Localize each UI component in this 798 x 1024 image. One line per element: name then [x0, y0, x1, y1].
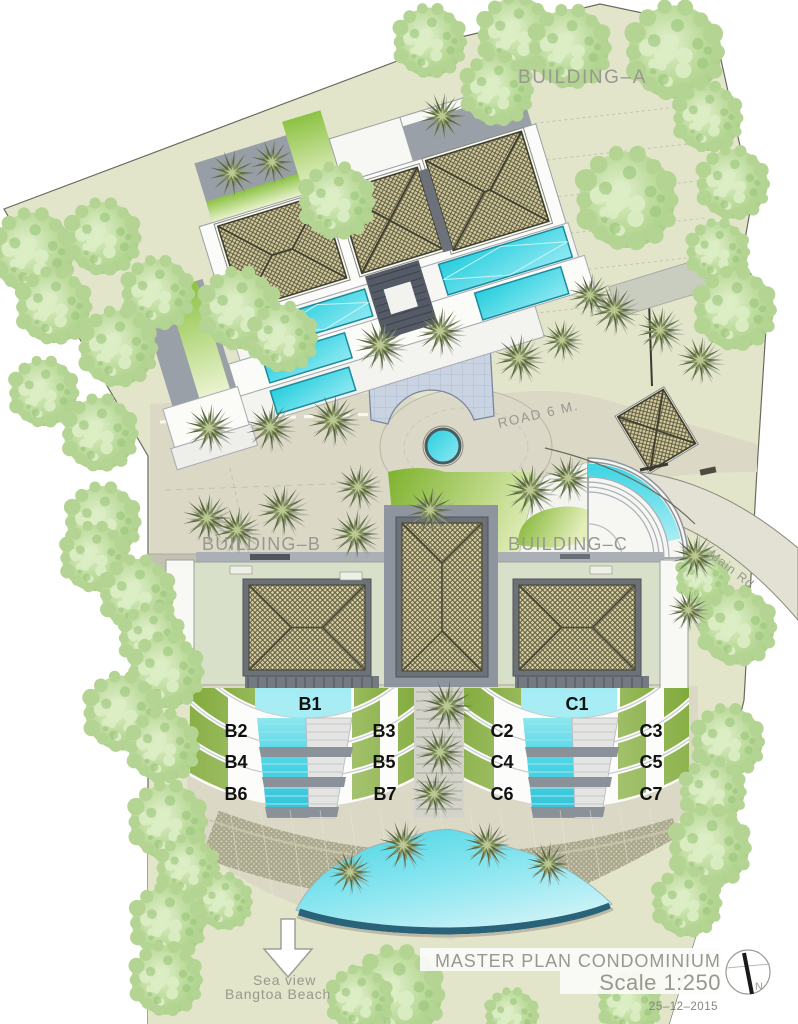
svg-text:BUILDING–C: BUILDING–C — [508, 534, 628, 554]
svg-text:C2: C2 — [490, 721, 513, 741]
svg-text:MASTER PLAN CONDOMINIUM: MASTER PLAN CONDOMINIUM — [435, 951, 721, 971]
svg-text:C7: C7 — [639, 784, 662, 804]
svg-text:BUILDING–A: BUILDING–A — [518, 67, 647, 88]
svg-text:B5: B5 — [372, 752, 395, 772]
svg-text:B2: B2 — [224, 721, 247, 741]
svg-text:B6: B6 — [224, 784, 247, 804]
svg-text:Scale 1:250: Scale 1:250 — [599, 970, 721, 995]
svg-text:N: N — [755, 981, 763, 993]
svg-text:B4: B4 — [224, 752, 247, 772]
svg-text:B7: B7 — [373, 784, 396, 804]
svg-text:C4: C4 — [490, 752, 513, 772]
svg-text:25–12–2015: 25–12–2015 — [649, 1001, 718, 1013]
svg-text:C5: C5 — [639, 752, 662, 772]
svg-text:C1: C1 — [565, 694, 588, 714]
svg-text:C3: C3 — [639, 721, 662, 741]
svg-text:BUILDING–B: BUILDING–B — [202, 534, 321, 554]
svg-text:B3: B3 — [372, 721, 395, 741]
svg-text:Bangtoa Beach: Bangtoa Beach — [225, 986, 331, 1002]
svg-text:B1: B1 — [298, 694, 321, 714]
svg-text:C6: C6 — [490, 784, 513, 804]
